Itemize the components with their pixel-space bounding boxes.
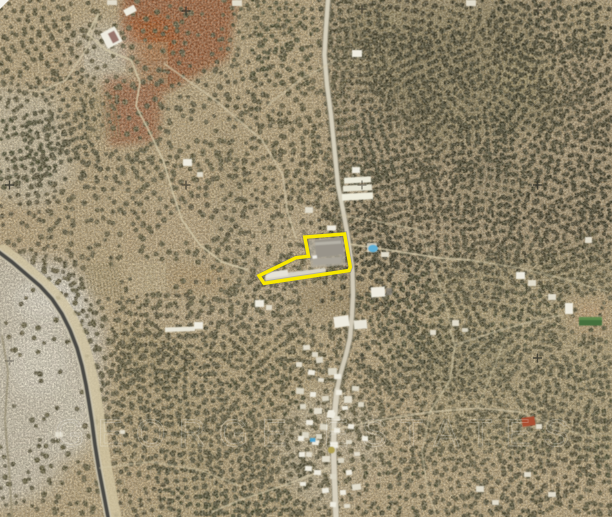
svg-text:GEORGE ESTATES: GEORGE ESTATES xyxy=(55,413,582,455)
